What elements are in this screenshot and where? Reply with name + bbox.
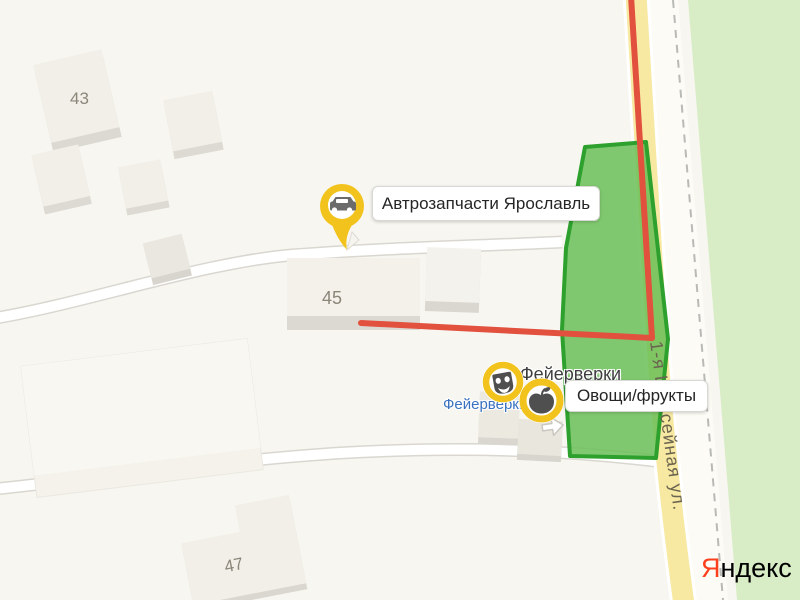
apple-icon <box>518 377 565 424</box>
produce-badge[interactable] <box>518 377 565 429</box>
map-viewport[interactable]: 43 45 47 1-я Шоссейная ул. Фейерверки Фе… <box>0 0 800 600</box>
building-45-number: 45 <box>322 288 342 308</box>
auto-parts-pin[interactable] <box>317 181 369 260</box>
building-47-number: 47 <box>223 554 245 576</box>
yandex-logo[interactable]: Яндекс <box>701 553 792 584</box>
map-canvas[interactable]: 43 45 47 1-я Шоссейная ул. <box>0 0 800 600</box>
yandex-logo-ya: Я <box>701 553 721 583</box>
produce-label[interactable]: Овощи/фрукты <box>565 380 708 412</box>
yandex-logo-rest: ндекс <box>721 553 792 583</box>
building-45[interactable] <box>287 258 420 330</box>
building-43-number: 43 <box>70 89 89 108</box>
car-icon <box>317 181 369 255</box>
auto-parts-label[interactable]: Автрозапчасти Ярославль <box>372 186 600 221</box>
